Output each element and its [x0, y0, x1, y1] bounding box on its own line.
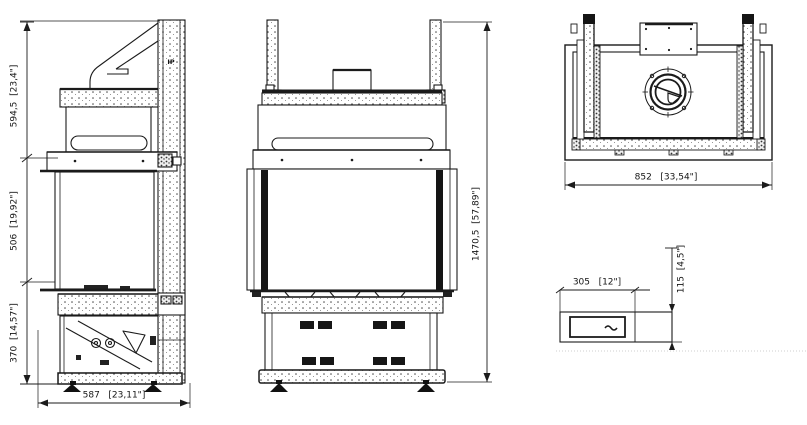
front-view-linework [247, 20, 492, 392]
front-top-band [262, 91, 442, 105]
dim-side-base-height: 370 [14,57"] [11, 303, 20, 363]
front-glass-window [247, 169, 457, 290]
front-plinth [265, 313, 437, 370]
side-view-linework [20, 20, 190, 408]
technical-drawing-canvas: 594,5 [23,4"] 506 [19,92"] 370 [14,57"] … [0, 0, 807, 425]
dim-side-upper-height: 594,5 [23,4"] [11, 65, 20, 128]
front-rounded-plate [272, 138, 433, 150]
dim-control-panel-height: 115 [4,5"] [678, 245, 687, 293]
side-plinth [60, 316, 158, 373]
top-mounting-plate [640, 23, 697, 55]
front-frame-band [253, 150, 450, 169]
side-top-brace [90, 23, 158, 89]
rail-marker-label: IP [167, 59, 174, 66]
side-base-band [58, 373, 182, 384]
dim-top-width: 852 [33,54"] [635, 174, 698, 183]
control-panel-window [570, 317, 625, 337]
side-rounded-plate [71, 136, 147, 150]
front-base-band [259, 370, 445, 383]
dim-side-glass-height: 506 [19,92"] [11, 191, 20, 251]
drawing-linework [0, 0, 807, 425]
dim-control-panel-width: 305 [12"] [573, 279, 621, 288]
side-glass-section [40, 172, 156, 290]
side-burner-band [58, 293, 185, 315]
dim-side-depth: 587 [23,11"] [83, 392, 146, 401]
front-flue-box [333, 70, 371, 90]
dim-front-total-height: 1470,5 [57,89"] [473, 187, 482, 261]
side-frame-band [47, 152, 181, 171]
side-top-band [60, 89, 158, 107]
top-view-linework [565, 14, 772, 190]
front-lower-band [262, 297, 443, 313]
side-back-rail [158, 20, 185, 383]
